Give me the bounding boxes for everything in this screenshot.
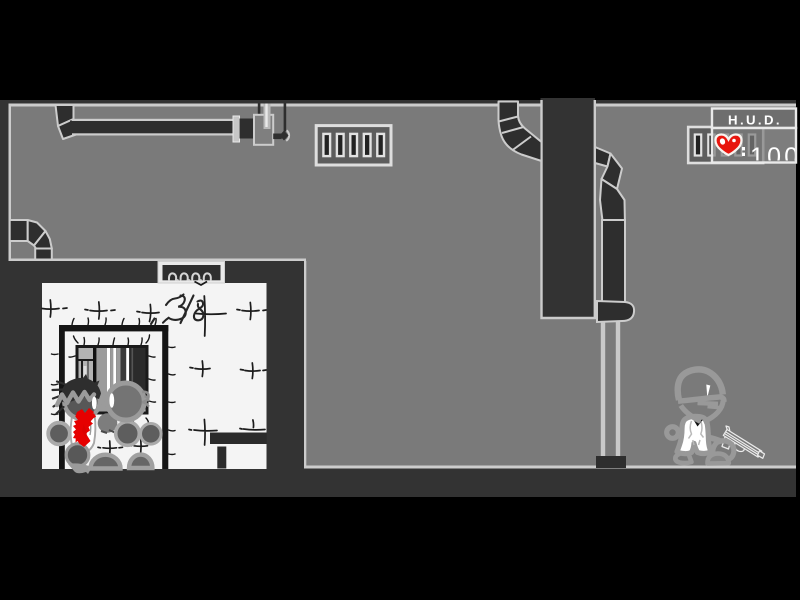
svg-text:H.U.D.: H.U.D. [728, 113, 782, 128]
